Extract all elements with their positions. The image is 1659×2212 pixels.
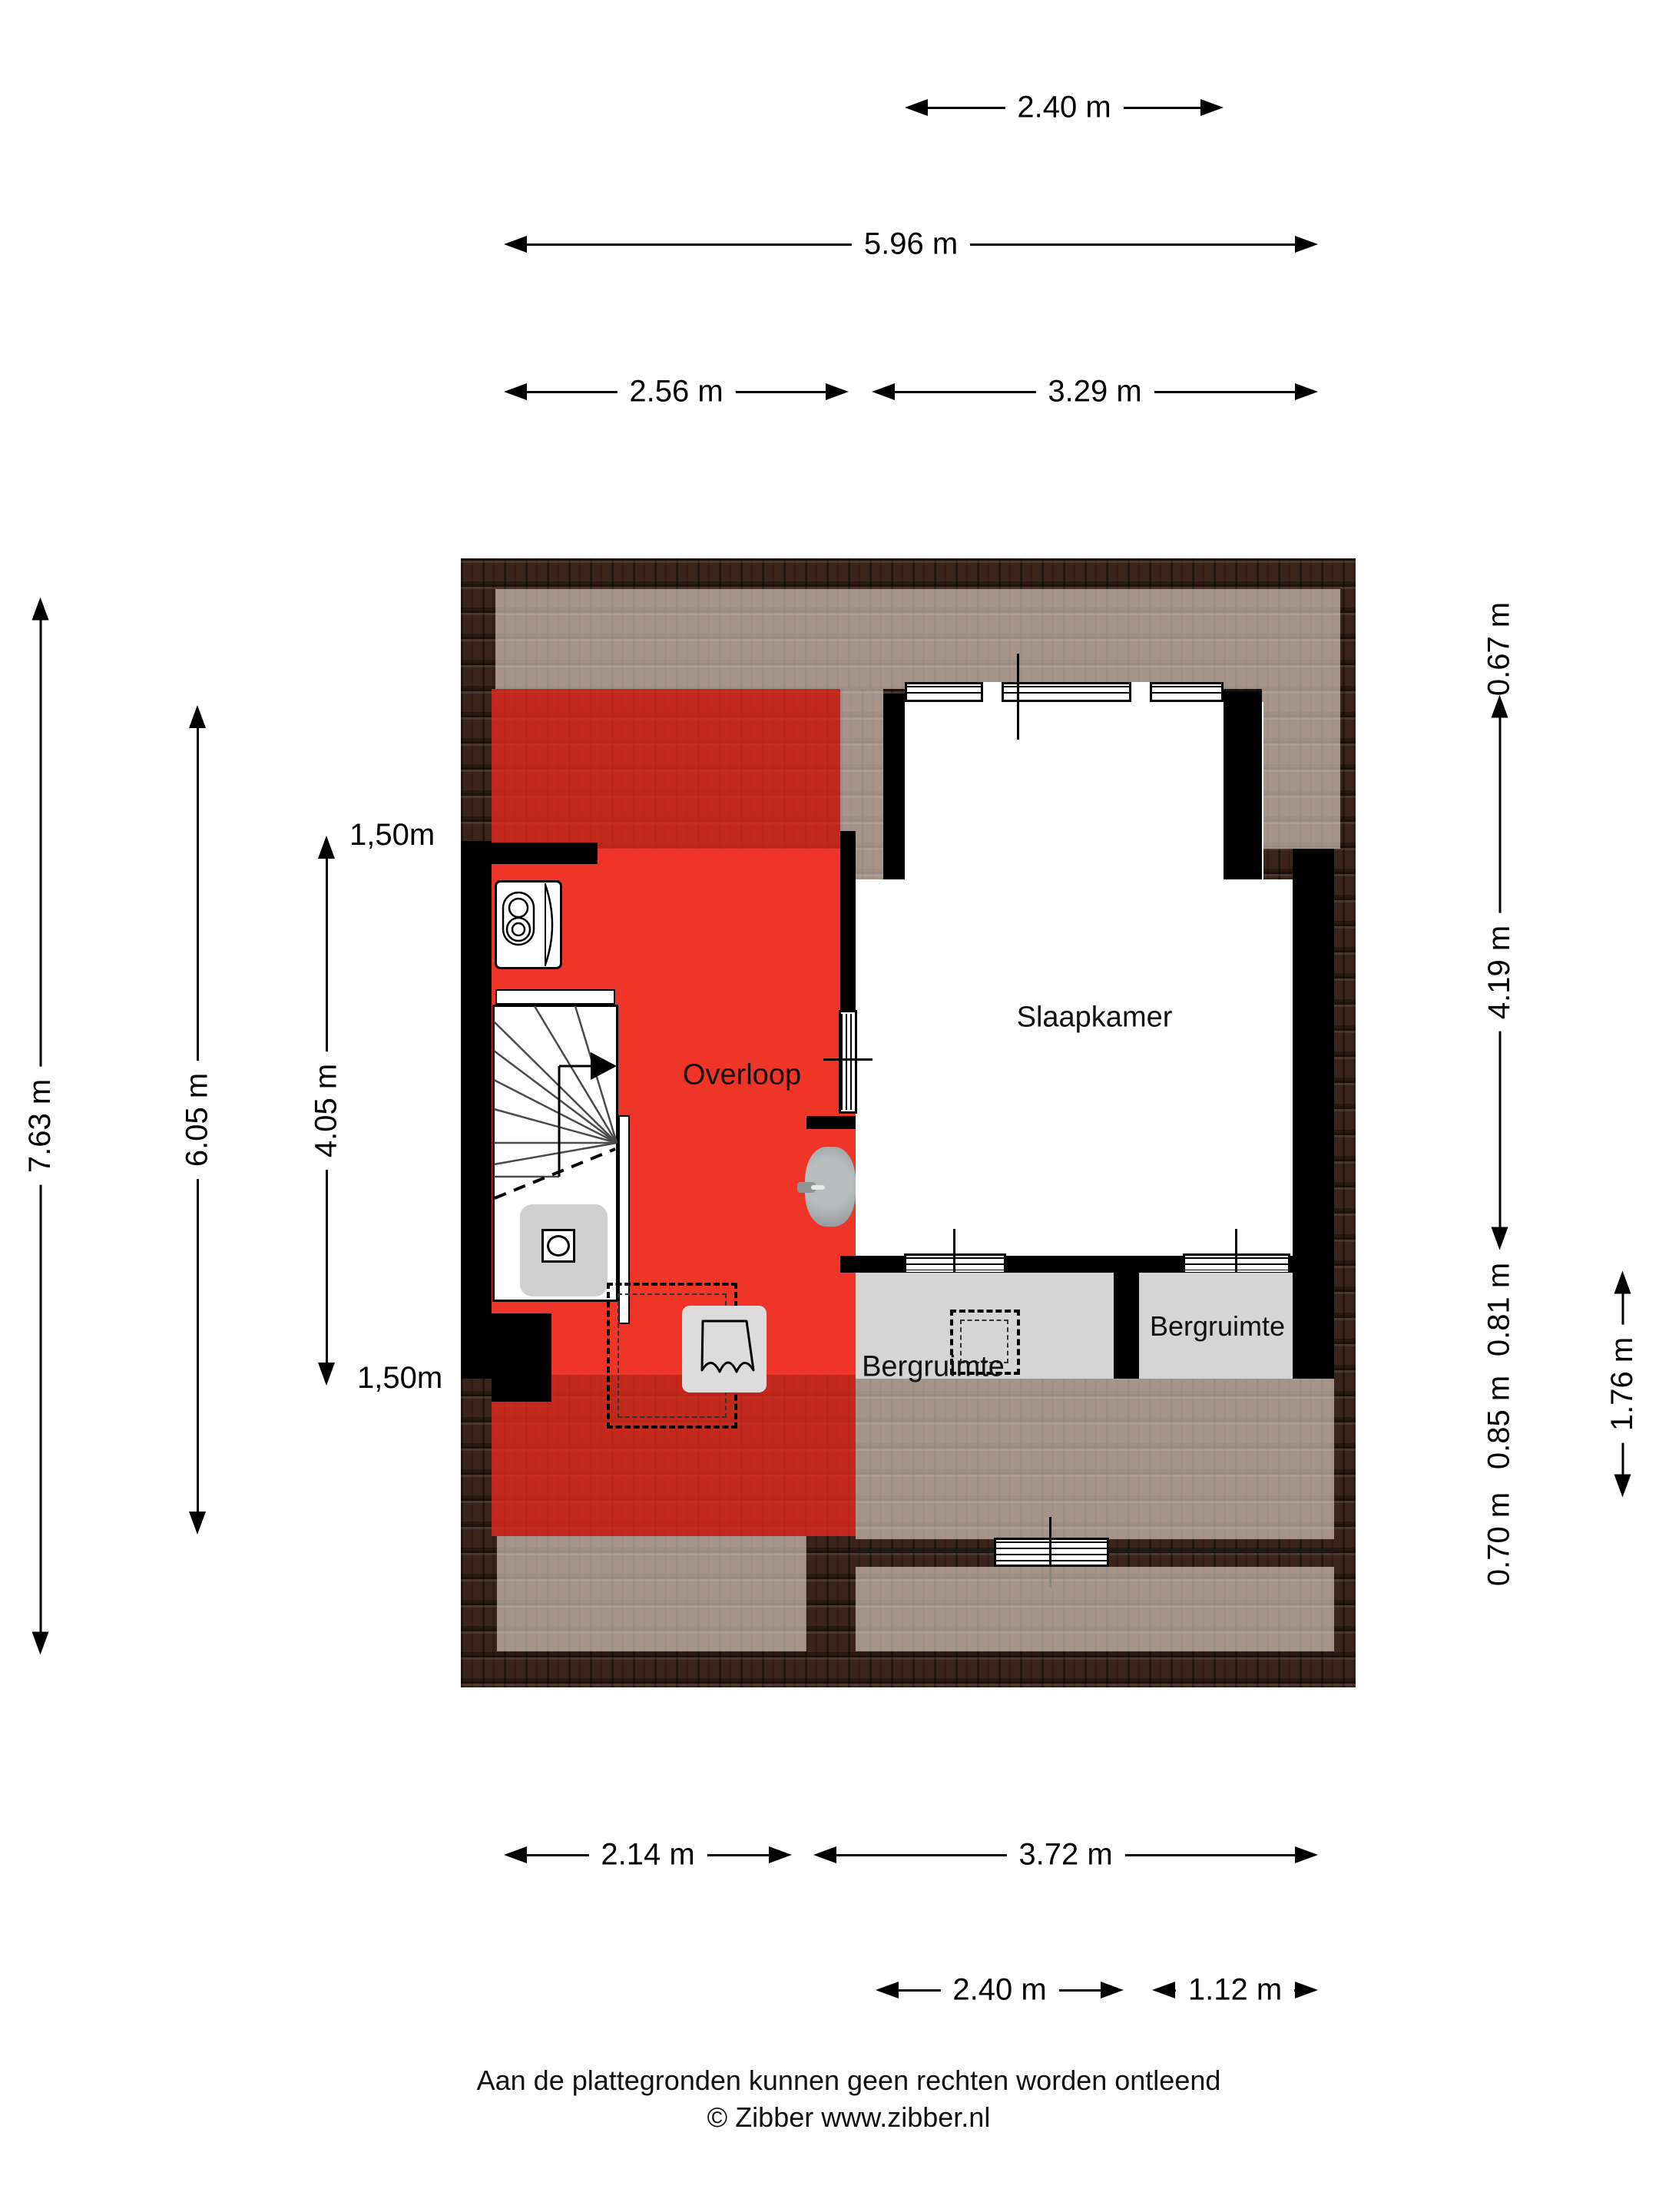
slaapkamer-floor — [856, 879, 1293, 1258]
glazed-panel-tick — [823, 1058, 873, 1061]
wall-bergruimte-divider — [1114, 1258, 1139, 1379]
wall-right — [1293, 849, 1334, 1379]
roof-light-bottom-left — [497, 1536, 806, 1651]
dim-label: 3.72 m — [1006, 1838, 1124, 1873]
dim-label: 4.19 m — [1482, 913, 1517, 1031]
window-mullion — [981, 682, 1004, 702]
wall-left-nub — [492, 843, 598, 864]
stairs-landing — [495, 989, 615, 1005]
dim-right-storage: 1.76 m — [1606, 1271, 1640, 1498]
room-label-overloop: Overloop — [683, 1059, 801, 1092]
shower-drain-icon — [541, 1229, 575, 1263]
roof-red-top-zone — [492, 689, 840, 849]
dim-top-total: 5.96 m — [504, 227, 1318, 261]
toilet-icon — [682, 1306, 767, 1392]
wall-dormer-right-stub — [1224, 691, 1262, 879]
dim-right-seg-a: 0.81 m — [1482, 1263, 1517, 1356]
wall-stub-sink — [806, 1116, 856, 1129]
clearance-label-bottom: 1,50m — [357, 1361, 442, 1396]
wall-block-bottom-left — [492, 1313, 551, 1402]
dim-label: 1.76 m — [1605, 1325, 1640, 1443]
dim-right-eave: 0.67 m — [1482, 602, 1517, 696]
floor-plan: Slaapkamer Overloop Bergruimte Bergruimt… — [461, 558, 1356, 1687]
dim-label: 2.40 m — [1005, 91, 1123, 125]
dim-label: 5.96 m — [852, 227, 970, 262]
room-label-slaapkamer: Slaapkamer — [1017, 1002, 1173, 1035]
dim-right-bedroom: 4.19 m — [1483, 695, 1517, 1250]
roof-light-bottom-a — [856, 1379, 1334, 1539]
dim-label: 2.56 m — [617, 375, 735, 409]
window-mullion — [1129, 682, 1152, 702]
dim-label: 3.29 m — [1035, 375, 1154, 409]
sink-icon — [805, 1147, 856, 1227]
dim-bottom-window: 2.40 m — [876, 1973, 1124, 2007]
dim-label: 1.12 m — [1176, 1973, 1294, 2008]
roof-light-top-band — [495, 589, 1340, 689]
dim-bottom-edge: 1.12 m — [1152, 1973, 1318, 2007]
dim-left-inner: 6.05 m — [180, 705, 214, 1535]
dim-top-right-section: 3.29 m — [872, 375, 1318, 409]
dim-label: 4.05 m — [310, 1051, 344, 1170]
dim-top-window: 2.40 m — [905, 91, 1224, 124]
wall-dormer-left-stub — [883, 694, 905, 879]
room-label-bergruimte-left: Bergruimte — [862, 1351, 1005, 1384]
dormer-window — [905, 682, 1224, 702]
window-center-tick — [1017, 654, 1019, 740]
room-label-bergruimte-right: Bergruimte — [1150, 1310, 1285, 1343]
footer-disclaimer: Aan de plattegronden kunnen geen rechten… — [477, 2065, 1221, 2097]
dim-bottom-left-section: 2.14 m — [504, 1838, 792, 1872]
clearance-label-top: 1,50m — [349, 818, 435, 853]
glazed-panel — [839, 1010, 857, 1114]
wall-overloop-divider — [840, 831, 856, 1010]
dim-left-total: 7.63 m — [24, 598, 58, 1655]
dim-right-seg-c: 0.70 m — [1482, 1492, 1517, 1586]
dim-top-left-section: 2.56 m — [504, 375, 849, 409]
floorplan-page: 2.40 m 5.96 m 2.56 m 3.29 m 7.63 m 6.05 … — [0, 0, 1659, 2212]
roof-light-bottom-b — [856, 1567, 1334, 1651]
dim-label: 7.63 m — [23, 1067, 58, 1185]
dim-label: 2.14 m — [588, 1838, 707, 1873]
dim-label: 6.05 m — [180, 1061, 215, 1179]
dim-right-seg-b: 0.85 m — [1482, 1376, 1517, 1469]
dim-bottom-right-section: 3.72 m — [813, 1838, 1318, 1872]
washing-machine-icon — [495, 880, 562, 969]
slaapkamer-floor-upper — [905, 702, 1263, 879]
footer-credit: © Zibber www.zibber.nl — [707, 2101, 991, 2134]
wall-left — [461, 841, 492, 1379]
roof-light-right-strip — [1262, 689, 1340, 849]
dim-left-headroom: 4.05 m — [310, 836, 343, 1386]
ridge-window — [994, 1538, 1109, 1567]
dim-label: 2.40 m — [940, 1973, 1058, 2008]
